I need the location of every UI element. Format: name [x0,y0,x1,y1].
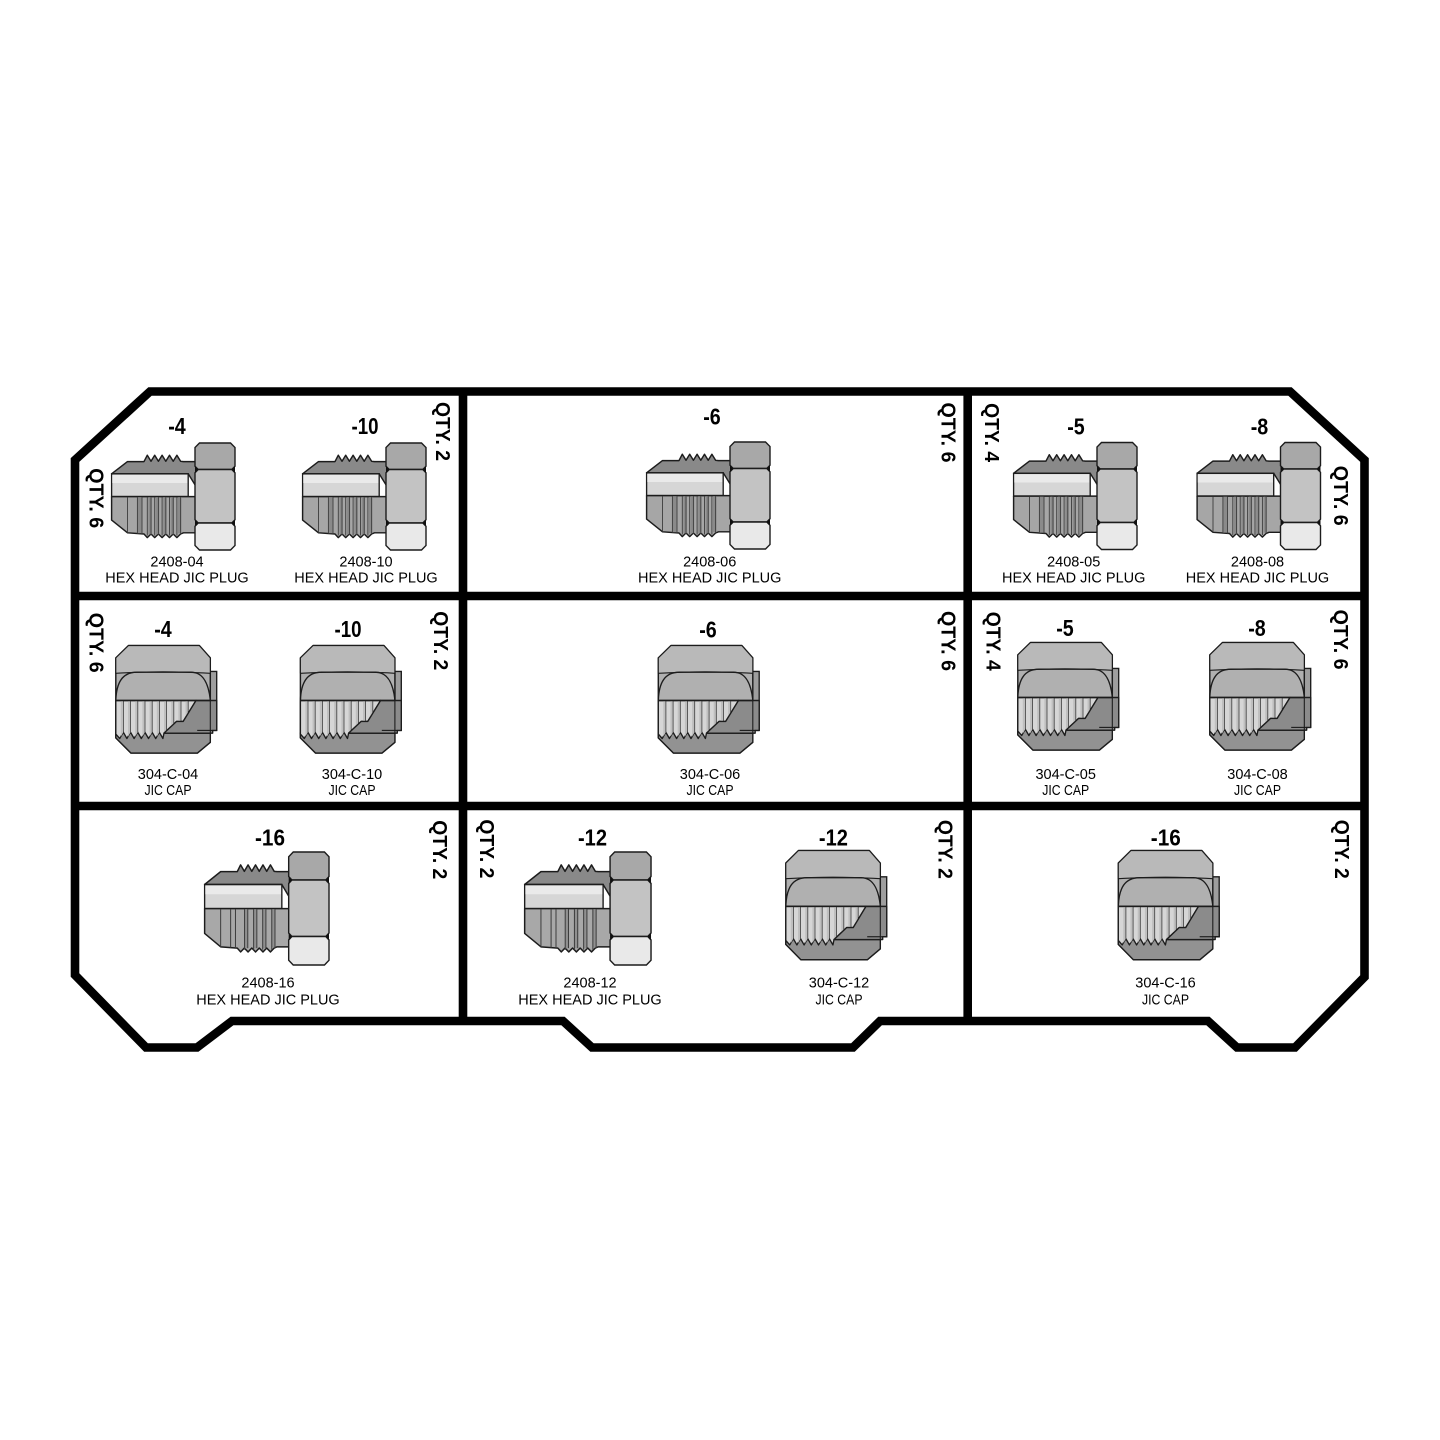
svg-text:QTY. 4: QTY. 4 [981,612,1004,672]
svg-text:2408-10: 2408-10 [339,554,392,570]
svg-text:JIC CAP: JIC CAP [145,783,192,799]
svg-text:2408-05: 2408-05 [1047,554,1100,570]
svg-text:304-C-12: 304-C-12 [809,976,869,992]
svg-text:-8: -8 [1251,414,1269,440]
svg-text:QTY. 2: QTY. 2 [431,402,454,461]
svg-text:QTY. 2: QTY. 2 [429,611,452,670]
svg-text:2408-04: 2408-04 [150,554,203,570]
svg-text:-12: -12 [578,825,607,851]
svg-text:-8: -8 [1248,615,1266,641]
svg-text:-12: -12 [819,825,848,851]
svg-text:QTY. 2: QTY. 2 [1330,820,1353,879]
svg-text:HEX HEAD JIC PLUG: HEX HEAD JIC PLUG [105,570,248,586]
svg-text:JIC CAP: JIC CAP [816,993,863,1009]
svg-text:-6: -6 [703,404,721,430]
svg-text:304-C-05: 304-C-05 [1035,767,1095,783]
svg-text:-10: -10 [335,616,362,642]
svg-text:JIC CAP: JIC CAP [1142,993,1189,1009]
svg-text:QTY. 6: QTY. 6 [85,468,108,528]
svg-text:2408-06: 2408-06 [683,554,736,570]
svg-text:QTY. 6: QTY. 6 [936,403,959,463]
svg-text:-10: -10 [352,413,379,439]
svg-text:304-C-08: 304-C-08 [1227,767,1287,783]
svg-text:HEX HEAD JIC PLUG: HEX HEAD JIC PLUG [638,570,781,586]
svg-text:-6: -6 [699,617,717,643]
svg-text:2408-12: 2408-12 [563,976,616,992]
svg-text:304-C-16: 304-C-16 [1135,976,1195,992]
svg-text:QTY. 6: QTY. 6 [1329,466,1352,526]
svg-text:HEX HEAD JIC PLUG: HEX HEAD JIC PLUG [196,993,339,1009]
svg-text:-16: -16 [255,825,285,851]
svg-text:QTY. 2: QTY. 2 [475,819,498,878]
svg-text:JIC CAP: JIC CAP [687,783,734,799]
svg-text:QTY. 6: QTY. 6 [936,611,959,671]
svg-text:JIC CAP: JIC CAP [1042,783,1089,799]
svg-text:2408-16: 2408-16 [241,976,294,992]
svg-text:-16: -16 [1151,825,1181,851]
svg-text:QTY. 6: QTY. 6 [1329,610,1352,670]
svg-text:QTY. 6: QTY. 6 [85,613,108,673]
svg-text:2408-08: 2408-08 [1231,554,1284,570]
svg-text:HEX HEAD JIC PLUG: HEX HEAD JIC PLUG [294,570,437,586]
svg-text:-4: -4 [168,413,186,439]
svg-text:JIC CAP: JIC CAP [329,783,376,799]
svg-text:QTY. 2: QTY. 2 [934,820,957,879]
svg-text:304-C-06: 304-C-06 [680,767,740,783]
svg-text:-4: -4 [154,616,172,642]
svg-text:-5: -5 [1067,414,1085,440]
svg-text:QTY. 2: QTY. 2 [428,820,451,879]
svg-text:HEX HEAD JIC PLUG: HEX HEAD JIC PLUG [1002,570,1145,586]
svg-text:304-C-10: 304-C-10 [322,767,382,783]
svg-text:HEX HEAD JIC PLUG: HEX HEAD JIC PLUG [518,993,661,1009]
svg-text:QTY. 4: QTY. 4 [980,403,1003,463]
svg-text:-5: -5 [1056,615,1074,641]
svg-text:JIC CAP: JIC CAP [1234,783,1281,799]
svg-text:304-C-04: 304-C-04 [138,767,198,783]
svg-text:HEX HEAD JIC PLUG: HEX HEAD JIC PLUG [1186,570,1329,586]
